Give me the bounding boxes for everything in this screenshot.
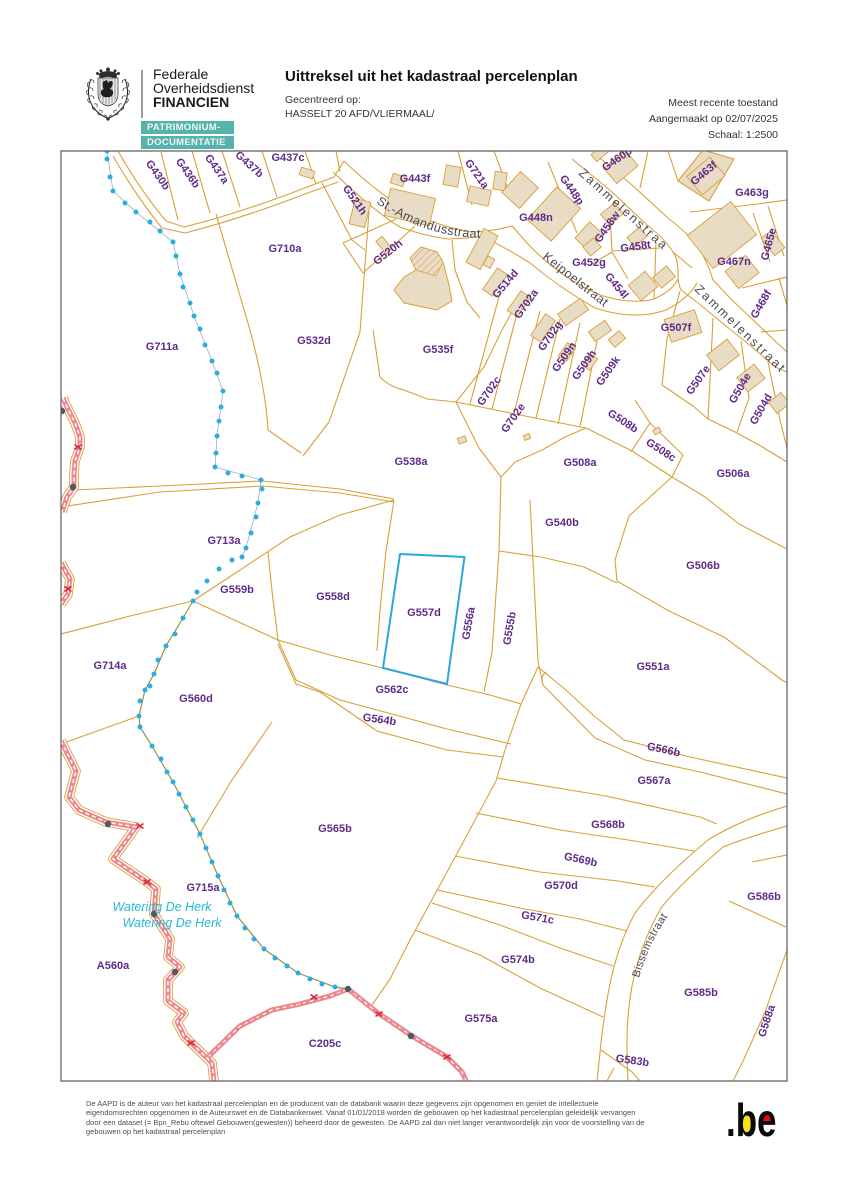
svg-text:G562c: G562c — [375, 684, 408, 696]
svg-text:G567a: G567a — [637, 775, 671, 787]
svg-text:Watering De Herk: Watering De Herk — [122, 916, 222, 930]
svg-text:G715a: G715a — [186, 882, 220, 894]
svg-text:G437c: G437c — [271, 152, 304, 164]
svg-text:G568b: G568b — [591, 819, 625, 831]
svg-text:G583b: G583b — [615, 1053, 650, 1070]
svg-text:G467n: G467n — [717, 256, 751, 268]
svg-text:G588a: G588a — [756, 1003, 778, 1039]
svg-text:G565b: G565b — [318, 823, 352, 835]
svg-text:G714a: G714a — [93, 660, 127, 672]
svg-text:G713a: G713a — [207, 535, 241, 547]
svg-text:Watering De Herk: Watering De Herk — [112, 900, 212, 914]
svg-text:G436b: G436b — [173, 156, 202, 191]
svg-text:G556a: G556a — [460, 605, 478, 640]
svg-text:G507f: G507f — [661, 322, 692, 334]
svg-text:G702c: G702c — [475, 374, 504, 408]
svg-text:G558d: G558d — [316, 591, 350, 603]
svg-text:G458t: G458t — [620, 239, 652, 255]
svg-text:G555b: G555b — [501, 611, 519, 646]
svg-text:G508b: G508b — [605, 407, 640, 436]
svg-text:G569b: G569b — [563, 851, 599, 870]
svg-text:G711a: G711a — [146, 341, 179, 353]
svg-text:G468f: G468f — [749, 288, 775, 321]
svg-text:G721a: G721a — [462, 157, 491, 192]
svg-text:G452g: G452g — [572, 257, 606, 269]
svg-text:G570d: G570d — [544, 880, 578, 892]
svg-text:G575a: G575a — [464, 1013, 498, 1025]
svg-text:G437a: G437a — [202, 152, 231, 187]
svg-text:G443f: G443f — [400, 173, 431, 185]
svg-text:G571c: G571c — [520, 909, 555, 927]
svg-text:G463g: G463g — [735, 187, 769, 199]
svg-text:G557d: G557d — [407, 607, 441, 619]
svg-text:G506a: G506a — [716, 468, 750, 480]
svg-text:G551a: G551a — [636, 661, 670, 673]
svg-text:G702e: G702e — [499, 401, 528, 435]
svg-text:G508a: G508a — [563, 457, 597, 469]
svg-text:G509k: G509k — [594, 354, 623, 389]
svg-text:G586b: G586b — [747, 891, 781, 903]
svg-text:G532d: G532d — [297, 335, 331, 347]
svg-text:G585b: G585b — [684, 987, 718, 999]
svg-text:G574b: G574b — [501, 954, 535, 966]
svg-text:G448n: G448n — [519, 212, 553, 224]
svg-text:G504d: G504d — [748, 392, 775, 427]
svg-text:G710a: G710a — [268, 243, 302, 255]
svg-text:C205c: C205c — [309, 1038, 341, 1050]
svg-text:G506b: G506b — [686, 560, 720, 572]
svg-text:G437b: G437b — [232, 149, 265, 181]
svg-text:G535f: G535f — [423, 344, 454, 356]
svg-text:.be: .be — [726, 1094, 777, 1144]
svg-text:G566b: G566b — [646, 741, 682, 760]
svg-text:Zammelenstraat: Zammelenstraat — [692, 282, 789, 376]
svg-text:G430b: G430b — [143, 158, 172, 193]
svg-text:G540b: G540b — [545, 517, 579, 529]
svg-text:A560a: A560a — [97, 960, 130, 972]
svg-text:G538a: G538a — [394, 456, 428, 468]
svg-text:Bissemstraat: Bissemstraat — [630, 911, 670, 979]
svg-text:G507e: G507e — [684, 363, 713, 397]
svg-text:G559b: G559b — [220, 584, 254, 596]
svg-text:G560d: G560d — [179, 693, 213, 705]
svg-text:G508c: G508c — [644, 436, 678, 464]
